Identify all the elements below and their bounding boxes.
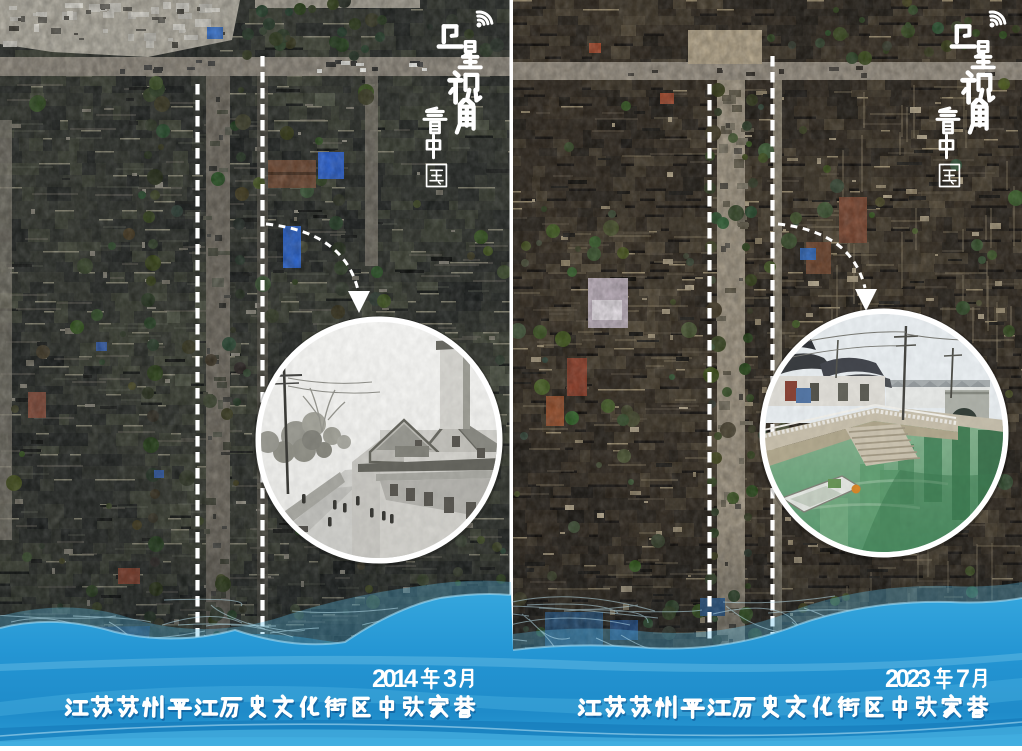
svg-text:3: 3 [443,665,457,693]
svg-text:2023: 2023 [885,665,931,693]
svg-text:2014: 2014 [372,665,418,693]
svg-text:7: 7 [956,665,970,693]
